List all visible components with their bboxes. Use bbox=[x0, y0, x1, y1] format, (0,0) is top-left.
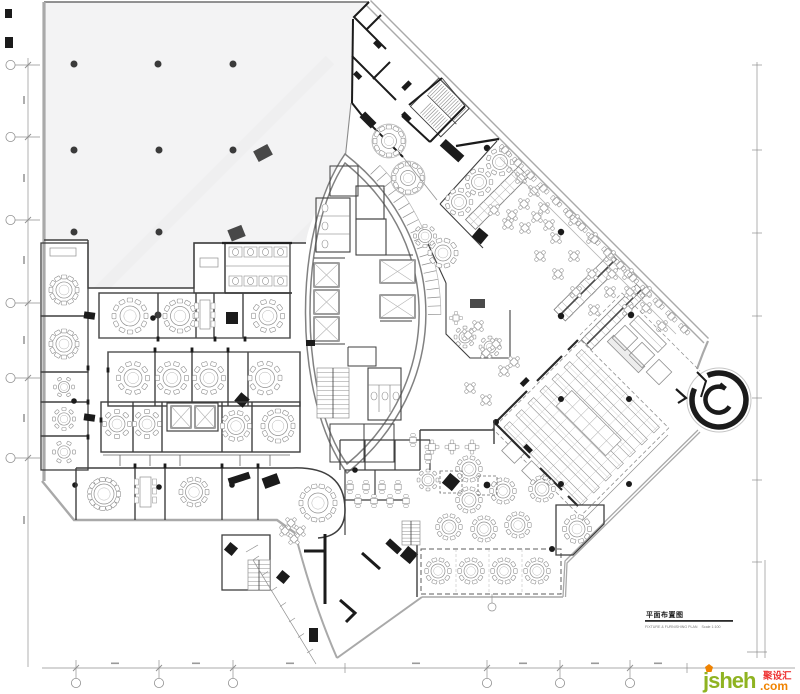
svg-text:FIXTURE & FURNISHING PLAN S: FIXTURE & FURNISHING PLAN Scale 1:100 bbox=[645, 625, 721, 629]
svg-text:聚设汇: 聚设汇 bbox=[762, 670, 792, 682]
svg-text:平面布置图: 平面布置图 bbox=[646, 610, 684, 619]
